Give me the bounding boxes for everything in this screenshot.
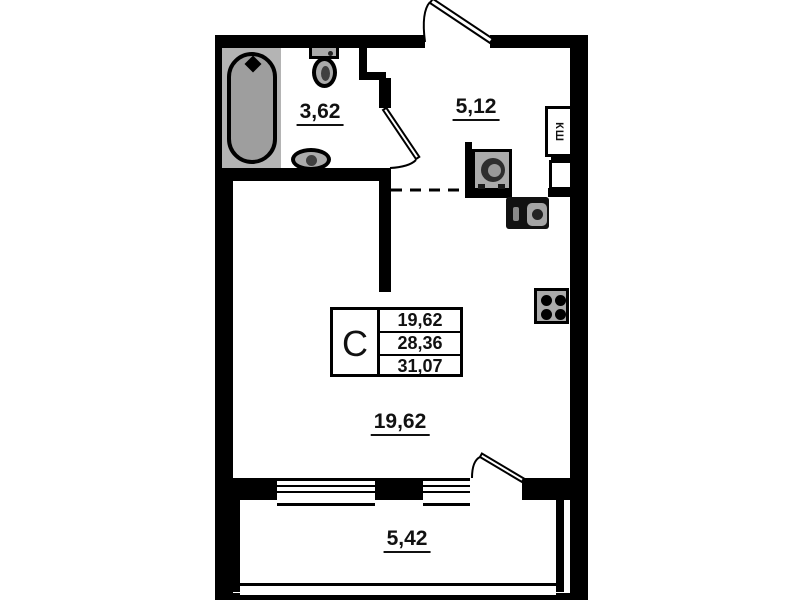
shaft-label: КШ [553, 122, 565, 142]
wall-balcony-west [233, 500, 240, 592]
bathroom-door-arc [390, 160, 416, 168]
stove-burner-icon [555, 295, 566, 306]
balcony-area-label: 5,42 [384, 528, 431, 553]
living-area-label: 19,62 [371, 411, 430, 436]
wall-south-pier [375, 478, 423, 500]
communication-shaft-box: КШ [545, 106, 573, 157]
washing-machine-door-inner [488, 164, 501, 177]
bathroom-area-label: 3,62 [297, 101, 344, 126]
window-living-right [423, 478, 470, 506]
wall-balcony-east [556, 500, 564, 592]
wall-bathroom-east-upper [359, 48, 367, 74]
unit-area-row: 28,36 [380, 333, 460, 356]
entrance-door-leaf [430, 0, 493, 43]
stove [534, 288, 569, 324]
window-pane-line [423, 491, 470, 493]
unit-area-row: 31,07 [380, 356, 460, 377]
hall-area-label: 5,12 [453, 96, 500, 121]
balcony-door-arc [472, 457, 480, 478]
kitchen-sink-drain-icon [532, 209, 543, 220]
stove-burner-icon [541, 295, 552, 306]
window-pane-line [277, 485, 375, 487]
doors-overlay [0, 0, 799, 600]
window-pane-line [423, 485, 470, 487]
toilet-flush-button-icon [328, 51, 333, 56]
window-pane-line [277, 491, 375, 493]
window-balcony [240, 583, 556, 598]
washer-side-panel [465, 142, 472, 192]
washbasin-drain-icon [306, 155, 317, 166]
wall-south-left [233, 478, 277, 500]
bathroom-door-leaf [383, 108, 419, 159]
unit-type-cell: С [333, 310, 380, 377]
unit-info-table: С 19,62 28,36 31,07 [330, 307, 463, 377]
washing-machine-foot [478, 184, 485, 189]
stove-burner-icon [541, 309, 552, 320]
wall-hall-west [379, 168, 391, 292]
wall-bathroom-east-lower [379, 78, 391, 108]
stove-burner-icon [555, 309, 566, 320]
counter-line [465, 190, 512, 198]
balcony-door-leaf [480, 454, 524, 483]
wall-south-right [522, 478, 588, 500]
window-living-left [277, 478, 375, 506]
unit-area-row: 19,62 [380, 310, 460, 333]
floor-plan: КШ 3,62 5,12 19,62 5,42 С 19,62 28,36 31… [0, 0, 799, 600]
washing-machine-foot [498, 184, 505, 189]
kitchen-sink-faucet-icon [513, 207, 519, 221]
unit-areas-column: 19,62 28,36 31,07 [380, 310, 460, 377]
duct-niche [549, 160, 573, 190]
toilet-bowl-inner [321, 66, 330, 81]
